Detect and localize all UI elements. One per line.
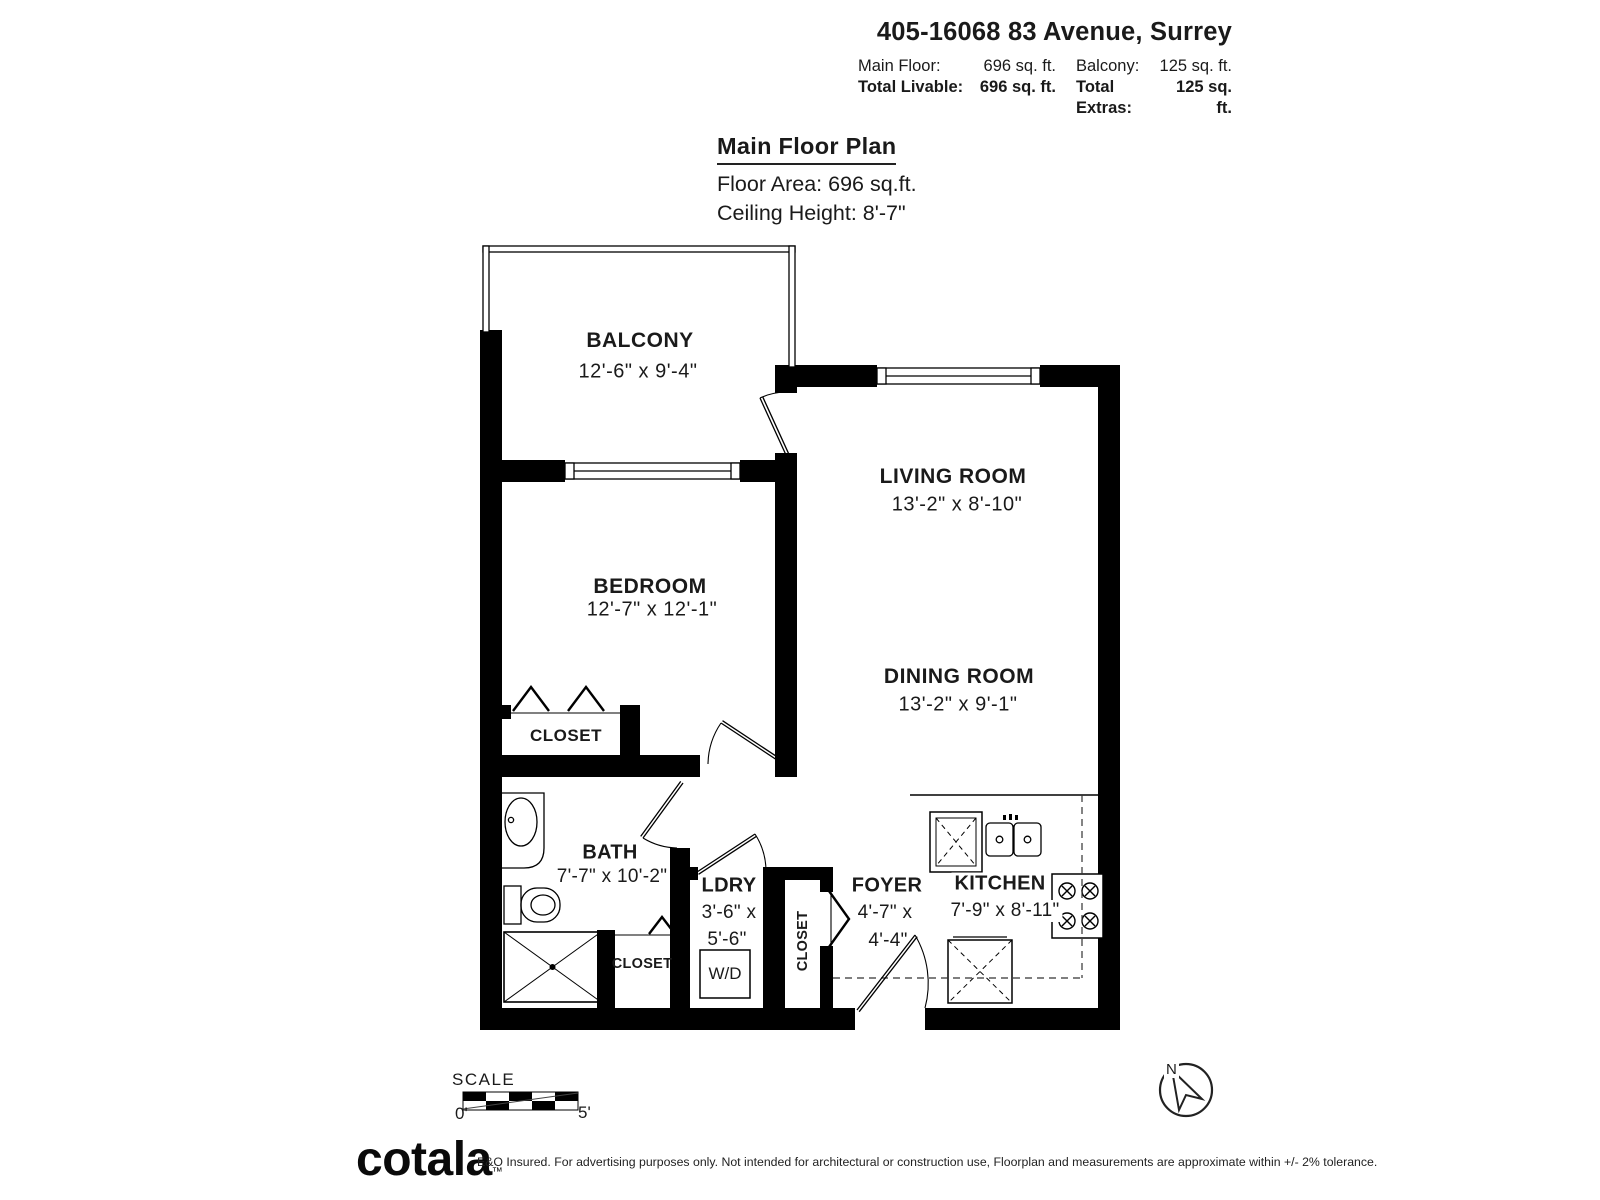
foyer-closet-stub-top [820,880,833,892]
scale-max-label: 5' [578,1103,591,1123]
toilet-bowl [521,888,560,922]
wall-bedroom-bottom-a [480,755,700,777]
ceiling-height-line: Ceiling Height: 8'-7" [717,199,917,228]
wall-middle-stub [775,365,797,393]
wall-balcony-bedroom-b [740,460,797,482]
vanity-counter [502,793,544,868]
room-dims-laundry-2: 5'-6" [707,929,746,951]
window-cap [565,463,574,479]
room-dims-balcony: 12'-6" x 9'-4" [579,361,698,384]
bath-fixtures [502,793,601,1002]
bedroom-closet-bifold-left [513,687,549,711]
scale-label: SCALE [452,1070,515,1090]
foyer-closet-top-wall [763,867,833,880]
stat-label: Total Livable: [858,77,970,119]
kitchen-sink [986,814,1041,856]
toilet-tank [504,886,521,924]
kitchen-fixtures [833,795,1103,1003]
room-label-bath: BATH [582,842,637,865]
scale-min-label: 0' [455,1104,468,1124]
wall-bottom-right [925,1008,1120,1030]
north-label: N [1164,1061,1179,1078]
page-title: 405-16068 83 Avenue, Surrey [858,18,1232,47]
wall-balcony-bedroom-a [480,460,565,482]
foyer-closet-bifold [829,891,849,947]
scale-bar [463,1092,578,1110]
floor-area-line: Floor Area: 696 sq.ft. [717,170,917,199]
wall-laundry-closet [763,867,785,1008]
railing-right [789,246,795,367]
room-label-balcony: BALCONY [586,329,693,353]
plan-title-block: Main Floor Plan Floor Area: 696 sq.ft. C… [717,133,917,228]
stats-row-1: Main Floor: 696 sq. ft. Balcony: 125 sq.… [858,56,1232,77]
room-dims-bedroom: 12'-7" x 12'-1" [587,599,718,622]
bedroom-closet-stub-left [502,705,511,719]
railing-left [483,246,489,332]
closet-label-bath: CLOSET [612,956,673,972]
bath-door [641,781,683,848]
plan-heading: Main Floor Plan [717,133,896,165]
room-label-laundry: LDRY [702,875,757,898]
room-label-kitchen: KITCHEN [952,873,1049,896]
brand-text: cotala [356,1133,492,1186]
room-label-bedroom: BEDROOM [593,575,706,599]
room-dims-bath: 7'-7" x 10'-2" [557,866,668,888]
room-dims-laundry-1: 3'-6" x [702,902,757,924]
stat-value: 696 sq. ft. [970,56,1056,77]
closet-label-foyer: CLOSET [795,911,811,972]
foyer-closet-stub-bottom [820,946,833,1008]
room-dims-foyer-2: 4'-4" [868,930,907,952]
bedroom-closet-wall-right [620,705,640,757]
stat-label: Balcony: [1056,56,1158,77]
room-label-foyer: FOYER [852,875,922,898]
disclaimer-text: E&O Insured. For advertising purposes on… [477,1155,1377,1169]
wall-bedroom-bottom-b [783,755,797,777]
stat-label: Total Extras: [1056,77,1158,119]
floor-plan-page: { "header": { "title": "405-16068 83 Ave… [0,0,1600,1200]
laundry-door-stub [688,867,698,880]
area-stats: Main Floor: 696 sq. ft. Balcony: 125 sq.… [858,56,1232,119]
wall-middle [775,453,797,777]
wall-left [480,330,502,1030]
room-dims-dining: 13'-2" x 9'-1" [899,694,1018,717]
stat-value: 696 sq. ft. [970,77,1056,119]
bedroom-door [708,721,785,764]
room-dims-living: 13'-2" x 8'-10" [892,494,1023,517]
stat-value: 125 sq. ft. [1158,56,1232,77]
room-label-living: LIVING ROOM [880,465,1027,489]
window-cap [1031,368,1040,384]
window-cap [877,368,886,384]
stats-row-2: Total Livable: 696 sq. ft. Total Extras:… [858,77,1232,119]
washer-dryer-label: W/D [708,964,741,984]
railing-top [483,246,795,252]
room-dims-kitchen: 7'-9" x 8'-11" [947,900,1062,922]
laundry-door [697,834,766,874]
stat-value: 125 sq. ft. [1158,77,1232,119]
balcony-door [760,392,789,455]
bedroom-closet-bifold-right [568,687,604,711]
sink-faucet [508,817,513,822]
wall-bath-laundry [670,848,690,1008]
room-label-dining: DINING ROOM [884,665,1034,689]
window-cap [731,463,740,479]
wall-living-top-b [1040,365,1120,387]
closet-label-bedroom: CLOSET [530,726,602,746]
wall-bottom-left [480,1008,855,1030]
room-dims-foyer-1: 4'-7" x [858,902,913,924]
stat-label: Main Floor: [858,56,970,77]
